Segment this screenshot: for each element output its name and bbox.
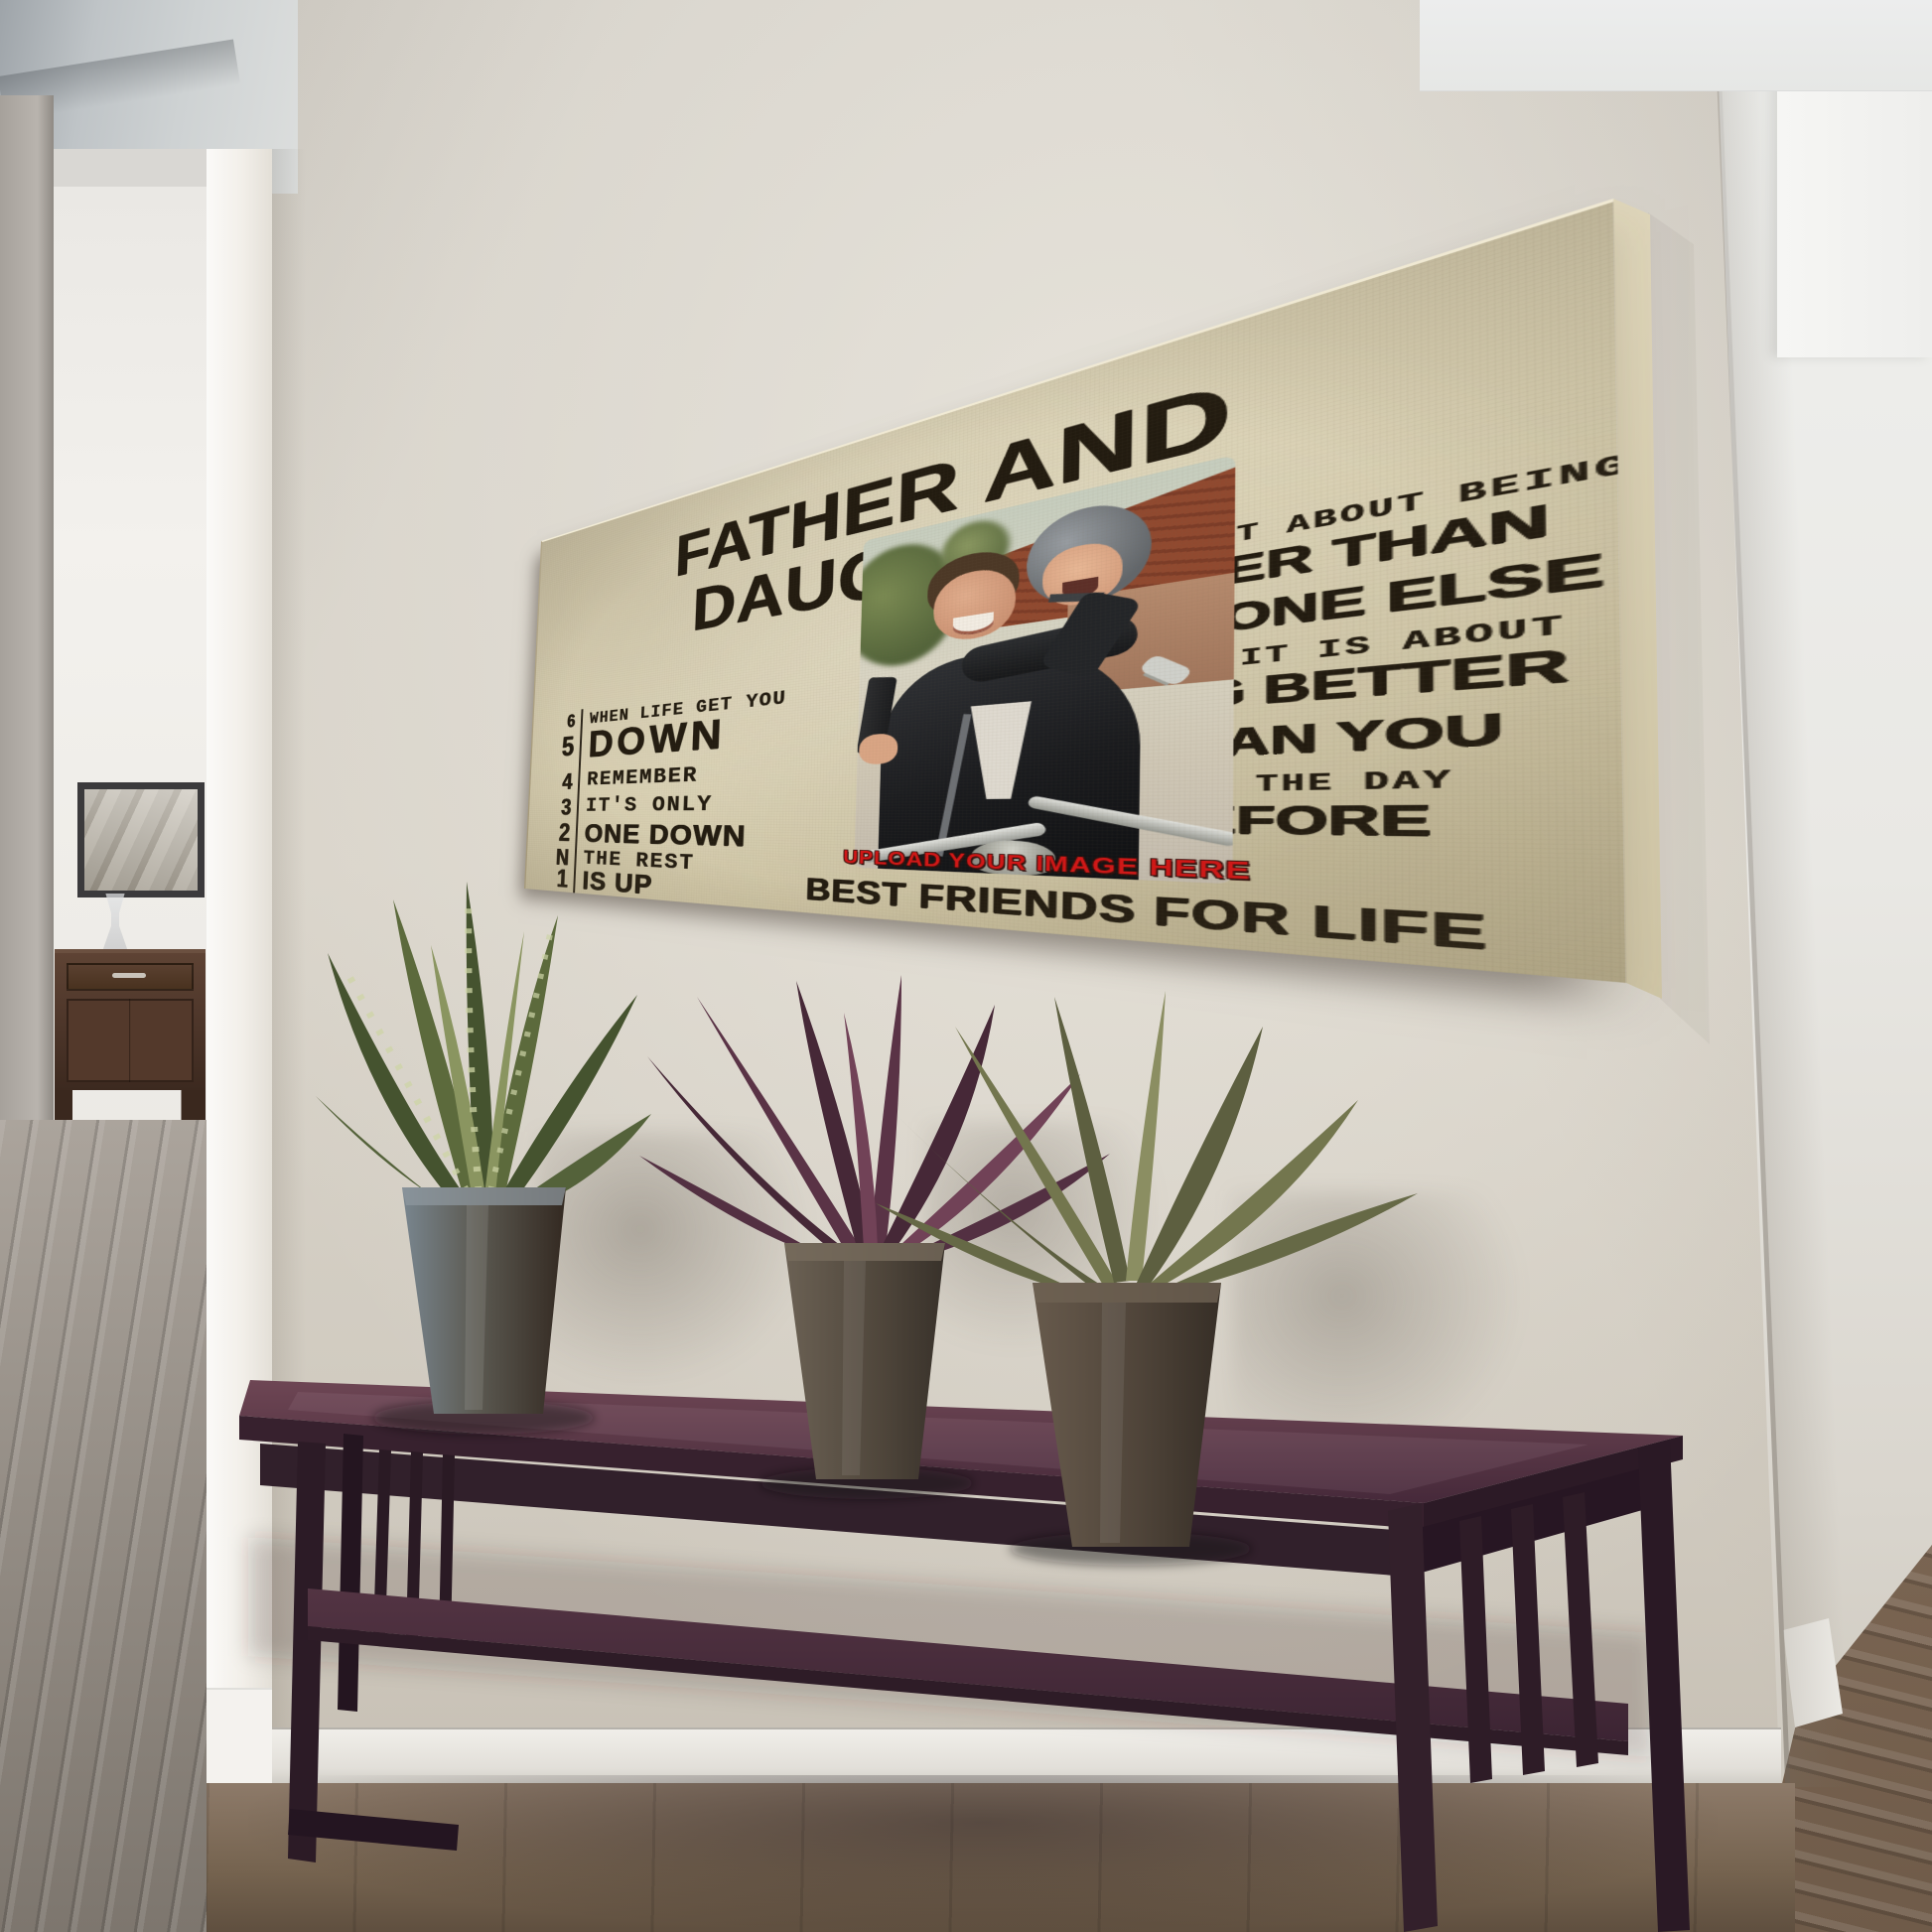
pot-rim [784,1243,945,1261]
olive-agave-plant [876,991,1418,1299]
zebra-succulent-plant [316,882,651,1215]
console-table-and-plants-graphic [0,0,1932,1932]
room-scene: FATHER AND DAUGHTER 6 5 4 3 2 N 1 WHEN L… [0,0,1932,1932]
plant-pot-left [402,1187,566,1414]
table-leg-front-left [288,1442,326,1863]
pot-rim [1033,1283,1221,1303]
pot-rim [402,1187,566,1205]
purple-dracaena-plant [639,975,1110,1265]
